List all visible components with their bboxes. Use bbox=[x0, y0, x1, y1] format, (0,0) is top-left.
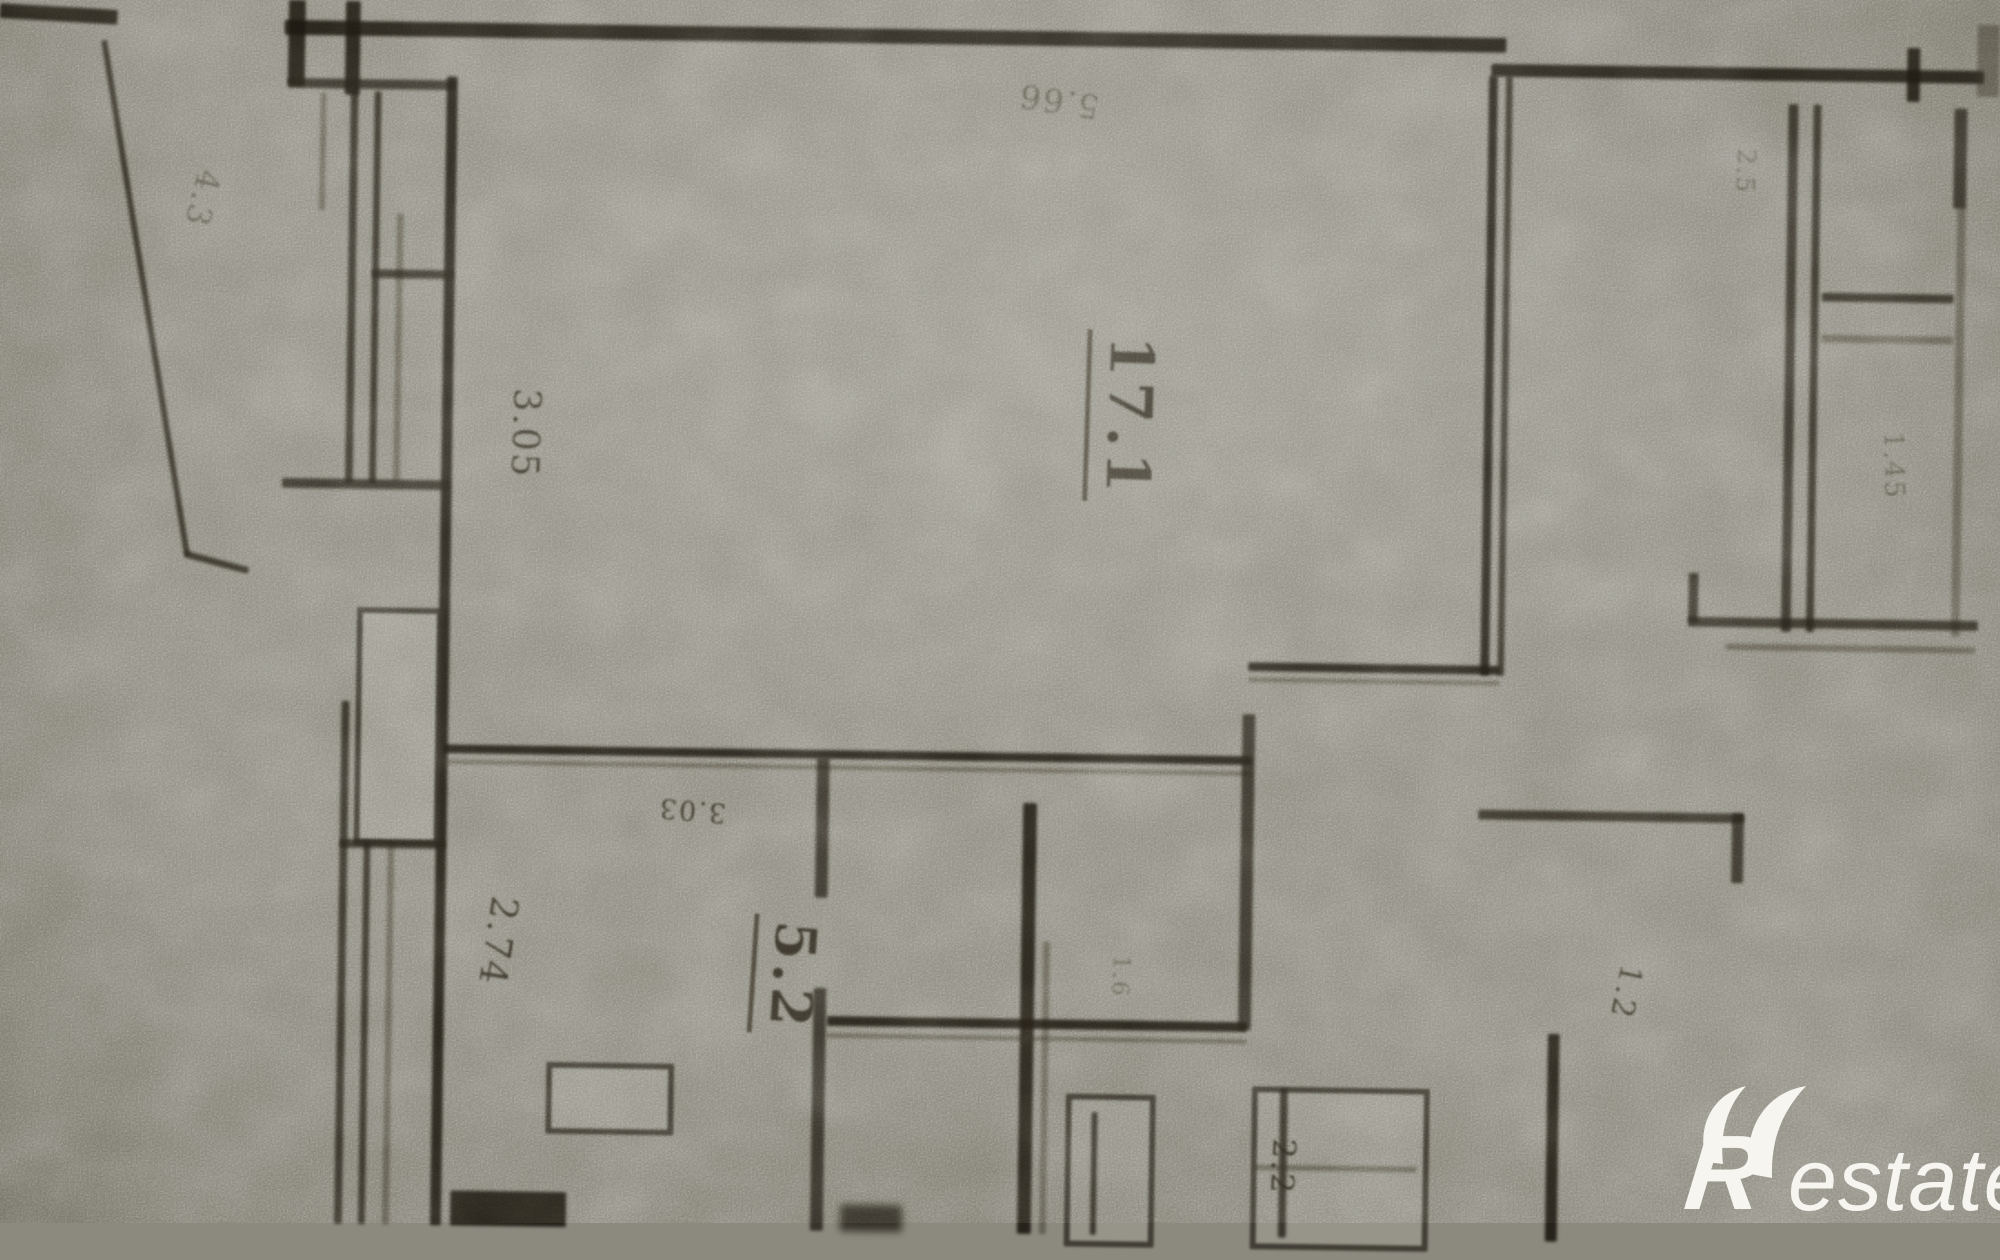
balcony-diagonal-hook bbox=[184, 550, 250, 574]
wall-left-tick-4 bbox=[339, 839, 445, 850]
dim-2-5: 2.5 bbox=[1732, 148, 1759, 195]
room-area-5-2: 5.2 bbox=[747, 913, 825, 1037]
dim-1-45: 1.45 bbox=[1879, 431, 1907, 500]
window-left-line-1b bbox=[334, 701, 350, 1224]
wall-top-left-stub bbox=[0, 3, 118, 25]
dim-3-05: 3.05 bbox=[506, 388, 546, 480]
wall-bath-top-2 bbox=[827, 1033, 1247, 1044]
wall-lower-right-hook bbox=[1731, 813, 1744, 883]
wall-right-outer bbox=[1953, 109, 1967, 209]
wall-lower-right-h bbox=[1478, 810, 1744, 824]
wall-room-right-b bbox=[1497, 76, 1513, 676]
restate-watermark: R estate bbox=[1686, 1086, 2000, 1226]
wall-left-top-a bbox=[288, 0, 306, 86]
fixture-dark-box-bottom bbox=[450, 1190, 567, 1227]
wall-top-right-tick bbox=[1907, 48, 1921, 102]
scanned-floor-plan-photo: 17.15.23.052.745.664.33.032.51.451.22.21… bbox=[0, 0, 2000, 1223]
window-left-line-3b bbox=[382, 841, 395, 1224]
wall-right-bottom bbox=[1688, 617, 1978, 631]
room-area-17-1: 17.1 bbox=[1082, 329, 1162, 503]
wall-left-tick-1 bbox=[288, 78, 456, 90]
window-right-tick-b bbox=[1821, 335, 1953, 345]
wall-right-outer-faint bbox=[1951, 207, 1966, 637]
wall-top-main bbox=[284, 20, 1506, 53]
wall-right-rooms-top-2 bbox=[1248, 677, 1500, 686]
dim-1-6: 1.6 bbox=[1107, 954, 1132, 998]
window-left-line-2a bbox=[369, 91, 382, 483]
wall-left-tick-2 bbox=[372, 269, 454, 279]
wall-partition-1a bbox=[815, 758, 830, 898]
window-right-line-b bbox=[1806, 104, 1822, 632]
wall-corner-mark bbox=[1977, 25, 2000, 97]
window-left-box bbox=[353, 607, 443, 846]
wall-room-right-a bbox=[1480, 76, 1498, 676]
window-left-line-1a bbox=[345, 91, 359, 483]
window-right-tick-a bbox=[1822, 293, 1954, 304]
dim-4-3: 4.3 bbox=[180, 166, 226, 231]
wall-partition-2b bbox=[1039, 941, 1050, 1234]
window-left-line-3a bbox=[393, 213, 404, 481]
window-left-extra-line bbox=[319, 92, 327, 210]
dim-5-66: 5.66 bbox=[1016, 79, 1102, 124]
ink-blob-bottom bbox=[840, 1204, 902, 1232]
floor-plan: 17.15.23.052.745.664.33.032.51.451.22.21… bbox=[0, 0, 2000, 1248]
wall-right-rooms-top bbox=[1248, 662, 1500, 675]
dim-2-2: 2.2 bbox=[1265, 1138, 1300, 1196]
wall-right-bottom-2 bbox=[1726, 643, 1976, 654]
window-left-line-2b bbox=[358, 841, 371, 1224]
dim-2-74: 2.74 bbox=[473, 894, 523, 989]
fixture-box-small bbox=[545, 1062, 674, 1136]
wall-left-tick-3 bbox=[282, 478, 450, 490]
wall-right-bottom-hook bbox=[1688, 573, 1699, 623]
restate-logo-text: estate bbox=[1788, 1138, 2000, 1222]
window-right-line-a bbox=[1781, 104, 1799, 632]
wall-bath-top bbox=[827, 1016, 1247, 1032]
dim-1-2: 1.2 bbox=[1605, 962, 1647, 1022]
fixture-box-1 bbox=[1064, 1093, 1156, 1247]
dim-3-03: 3.03 bbox=[657, 794, 727, 827]
balcony-diagonal-line bbox=[101, 40, 190, 556]
restate-logo-r: R bbox=[1681, 1128, 1767, 1218]
wall-lower-right-v bbox=[1545, 1034, 1560, 1242]
